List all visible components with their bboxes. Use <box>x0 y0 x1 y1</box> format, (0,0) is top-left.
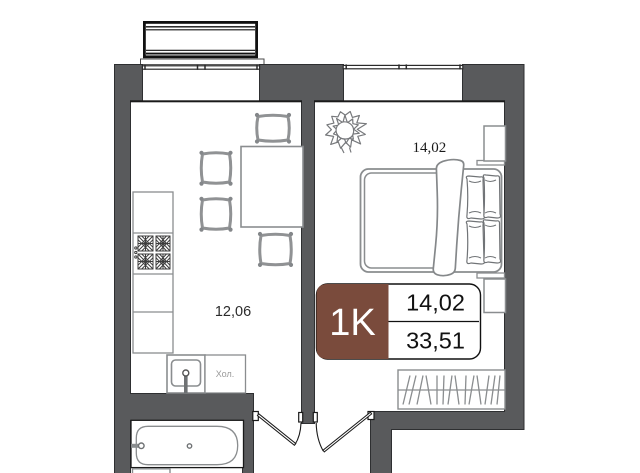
svg-text:33,51: 33,51 <box>406 328 465 354</box>
svg-text:14,02: 14,02 <box>406 289 465 315</box>
svg-text:12,06: 12,06 <box>215 304 251 320</box>
svg-text:Хол.: Хол. <box>216 369 234 379</box>
svg-text:1K: 1K <box>329 302 375 344</box>
svg-text:14,02: 14,02 <box>413 140 447 156</box>
